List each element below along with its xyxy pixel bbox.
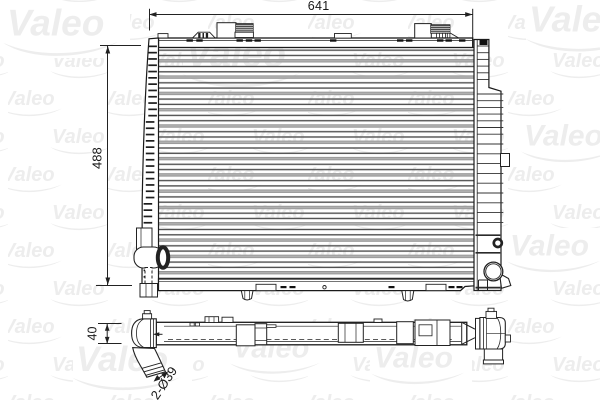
svg-text:488: 488 (90, 147, 105, 169)
svg-text:641: 641 (308, 0, 330, 13)
svg-text:40: 40 (86, 327, 100, 341)
